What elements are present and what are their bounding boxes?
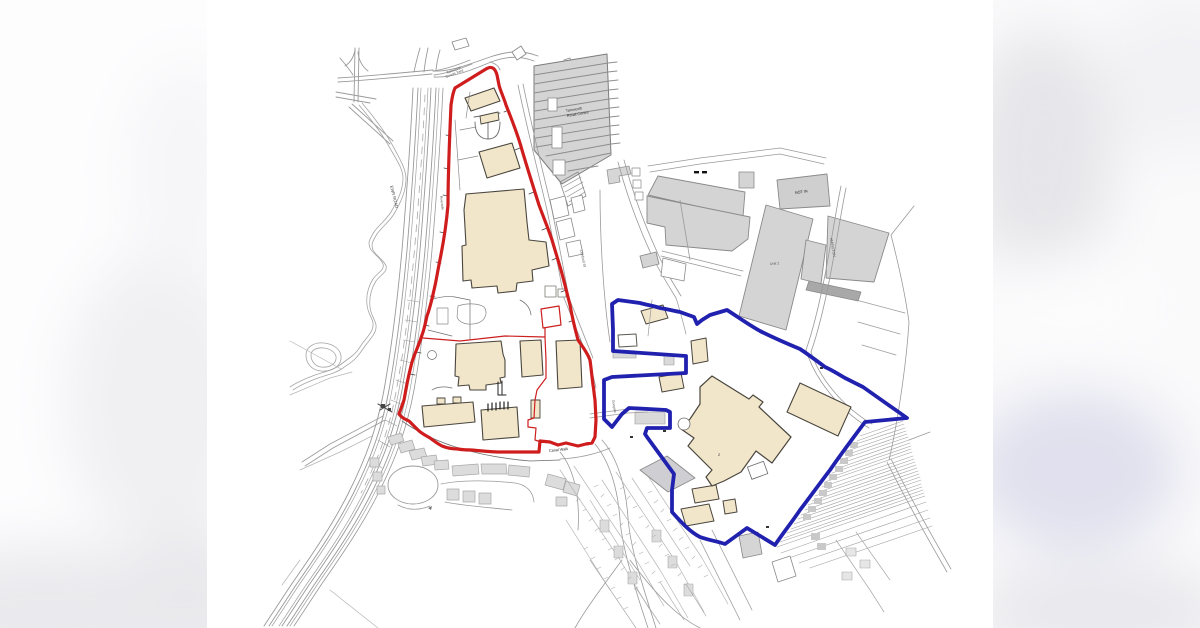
svg-text:Unit 2: Unit 2 (770, 261, 780, 266)
